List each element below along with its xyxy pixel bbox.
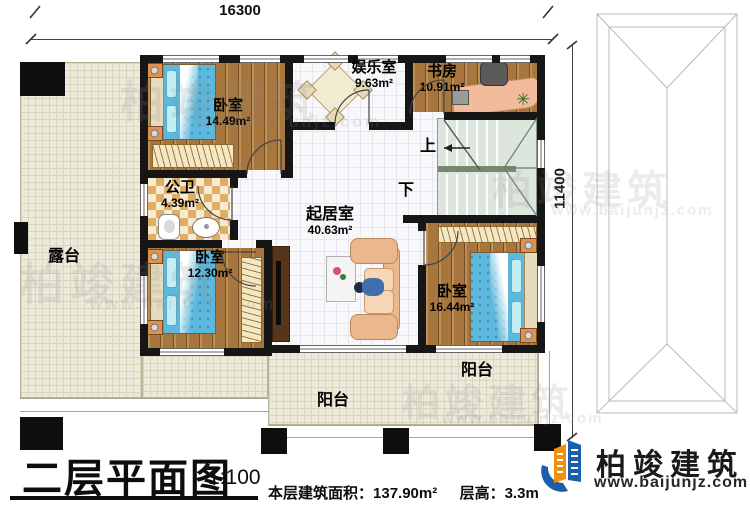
staircase	[437, 118, 537, 218]
balcony-floor	[268, 351, 538, 425]
nightstand	[146, 320, 163, 335]
dimension-top-line	[30, 39, 553, 40]
nightstand	[520, 238, 537, 253]
brand-logo-icon	[536, 437, 590, 493]
drawing-scale: 1:100	[208, 466, 261, 490]
wall-bedroom1-right	[285, 55, 293, 178]
floor-stats: 本层建筑面积：137.90m² 层高：3.3m	[268, 482, 539, 503]
nightstand	[146, 63, 163, 78]
column	[14, 222, 28, 254]
toilet-bowl	[164, 220, 175, 233]
room-label-balcony-side: 阳台	[461, 362, 493, 380]
balcony-railing-bottom	[268, 425, 550, 438]
column	[20, 62, 65, 96]
pillow	[166, 295, 177, 326]
stair-down-label: 下	[398, 182, 414, 200]
window	[140, 184, 148, 216]
wall-study-bottom	[405, 112, 410, 120]
column	[261, 428, 287, 454]
title-underline	[10, 496, 258, 500]
window	[537, 266, 545, 322]
person-body	[362, 278, 384, 296]
column	[383, 428, 409, 454]
pillow	[166, 105, 177, 133]
wall-bedroom2-right	[264, 240, 272, 348]
nightstand	[520, 328, 537, 343]
table-flower	[340, 274, 346, 280]
room-label-bedroom1: 卧室 14.49m²	[206, 98, 251, 128]
floor-height-value: 3.3m	[505, 485, 539, 502]
sofa-seat	[350, 238, 398, 264]
sink-drain	[204, 224, 209, 229]
bed-sheet-fold	[490, 253, 508, 341]
room-label-living: 起居室 40.63m²	[306, 206, 354, 237]
room-label-bedroom2: 卧室 12.30m²	[188, 250, 233, 280]
terrace-railing	[20, 398, 268, 412]
wall-bathroom-right	[230, 220, 238, 240]
wall-bedroom3-left	[418, 215, 426, 231]
sink	[192, 217, 220, 238]
window	[500, 55, 530, 63]
nightstand	[146, 249, 163, 264]
room-label-terrace: 露台	[48, 248, 80, 266]
room-label-study: 书房 10.91m²	[420, 64, 465, 94]
pillow	[511, 259, 522, 292]
watermark-url: www.baijunjz.com	[552, 202, 713, 219]
room-label-bedroom3: 卧室 16.44m²	[430, 284, 475, 314]
wall-bedroom1-bottom	[140, 170, 247, 178]
room-label-bathroom: 公卫 4.39m²	[161, 180, 199, 210]
terrace-extension-floor	[142, 356, 268, 398]
adjacent-roof-outline	[597, 14, 737, 413]
wall-bathroom-bottom	[140, 240, 222, 248]
window	[304, 55, 348, 63]
sofa-seat	[350, 314, 398, 340]
floor-plan-page: 16300 11400	[0, 0, 750, 505]
tv	[276, 261, 281, 325]
wall-bedroom3-left	[418, 265, 426, 350]
pillow	[166, 257, 177, 288]
window	[436, 345, 502, 353]
window	[300, 345, 406, 353]
window	[537, 140, 545, 168]
window	[163, 55, 219, 63]
closet	[152, 144, 234, 168]
room-label-entertainment: 娱乐室 9.63m²	[351, 60, 396, 90]
dimension-right-label: 11400	[552, 159, 569, 219]
floor-area-label: 本层建筑面积：	[268, 485, 373, 502]
table-flower	[333, 267, 341, 275]
wall-entertainment-bottom	[293, 122, 335, 130]
wall-bathroom-right	[230, 178, 238, 188]
wall-study-bottom	[444, 112, 545, 120]
stair-up-label: 上	[420, 138, 436, 156]
sofa	[350, 238, 400, 340]
dimension-right-line	[572, 45, 573, 438]
office-chair	[480, 62, 508, 86]
room-label-balcony-main: 阳台	[317, 392, 349, 410]
nightstand	[146, 126, 163, 141]
pillow	[166, 70, 177, 98]
plant: ✳	[516, 90, 530, 110]
bed-sheet-fold	[180, 65, 198, 139]
stair-flight-upper	[438, 119, 506, 168]
terrace-floor	[20, 62, 142, 398]
floor-height-label: 层高：	[460, 485, 505, 502]
stair-flight-lower	[438, 174, 516, 219]
closet	[241, 257, 262, 343]
window	[160, 348, 224, 356]
tv-cabinet	[272, 246, 290, 342]
stair-handrail	[438, 166, 516, 172]
dimension-top-label: 16300	[195, 2, 285, 19]
brand-url: www.baijunjz.com	[594, 474, 748, 492]
window	[240, 55, 280, 63]
window	[140, 276, 148, 324]
window	[446, 55, 492, 63]
floor-area-value: 137.90m²	[373, 485, 437, 502]
toilet	[158, 214, 180, 240]
